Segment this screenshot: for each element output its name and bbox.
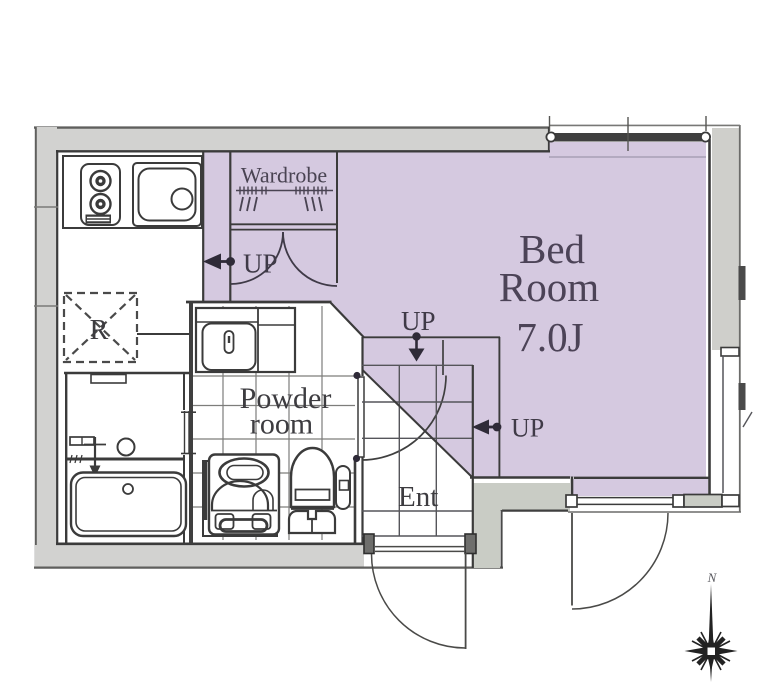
svg-text:7.0J: 7.0J: [516, 314, 583, 360]
svg-text:UP: UP: [511, 414, 544, 443]
svg-text:Wardrobe: Wardrobe: [241, 163, 327, 188]
svg-text:R: R: [90, 315, 109, 346]
svg-text:room: room: [250, 408, 313, 441]
svg-text:N: N: [707, 570, 718, 585]
svg-text:Room: Room: [499, 264, 599, 310]
svg-text:UP: UP: [401, 306, 436, 336]
svg-text:Ent: Ent: [398, 481, 438, 513]
svg-text:UP: UP: [243, 249, 278, 279]
